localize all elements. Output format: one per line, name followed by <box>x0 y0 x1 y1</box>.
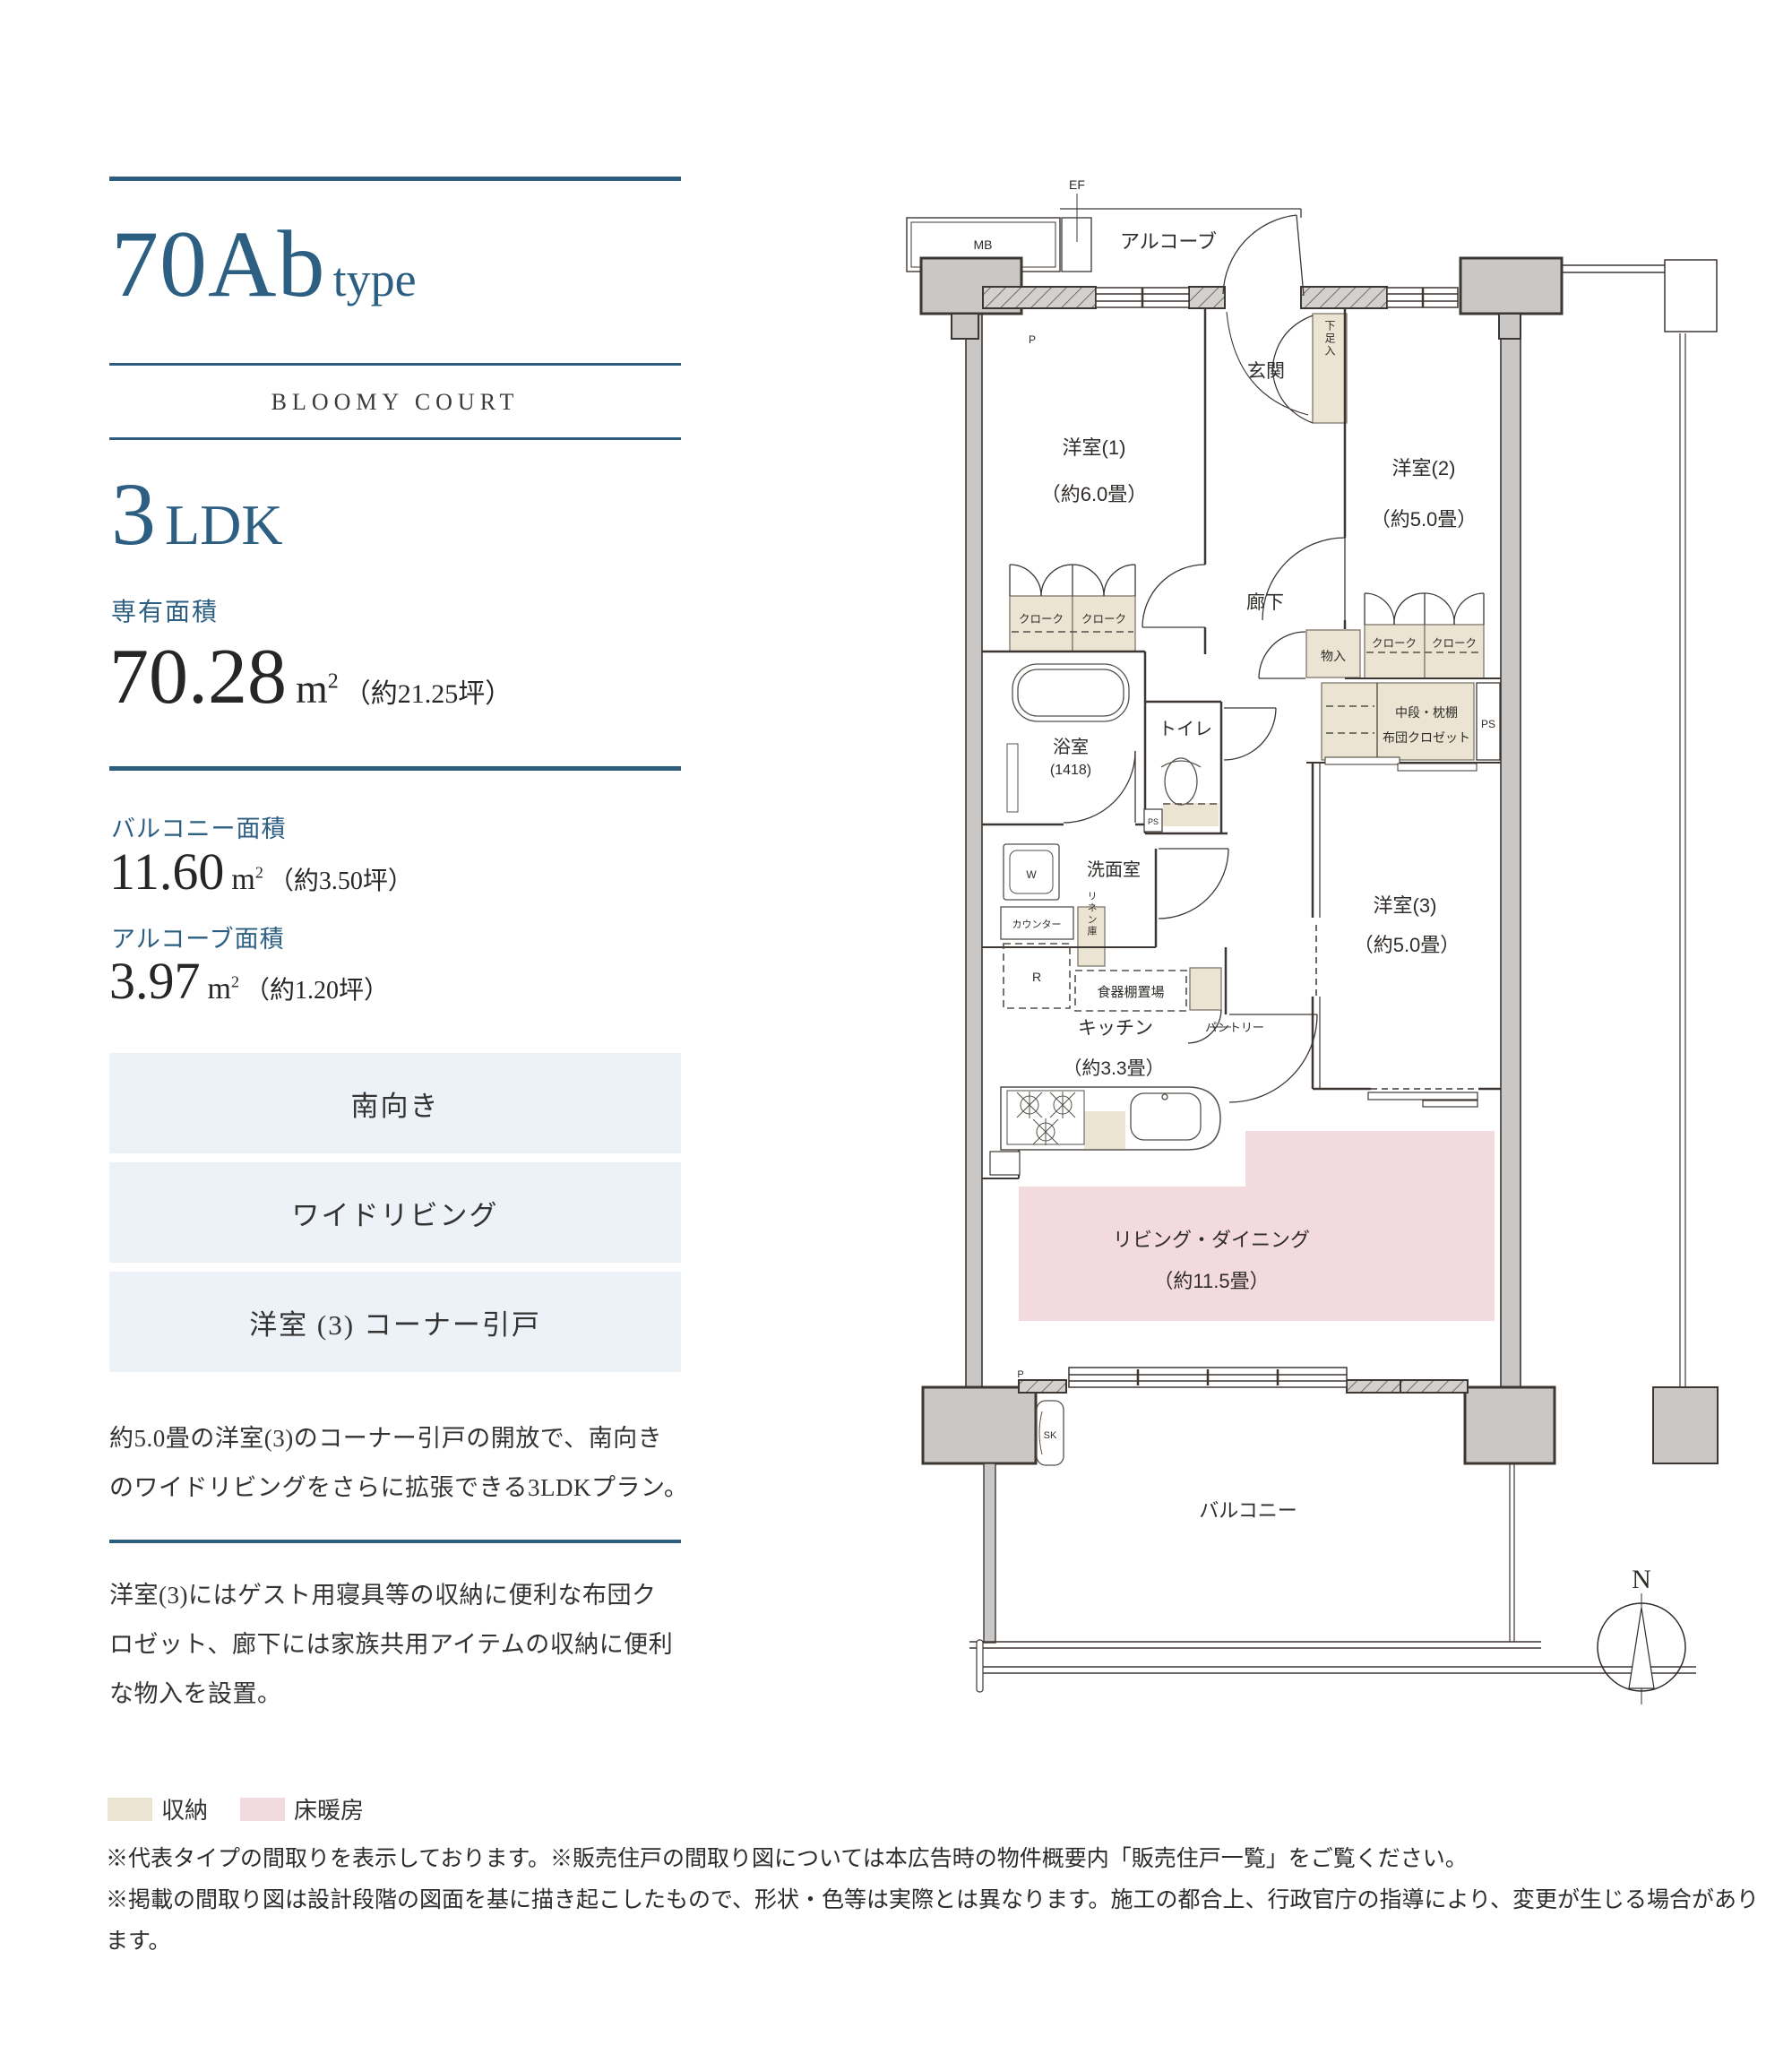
sliding-panel-2 <box>1423 1100 1478 1107</box>
bathtub-inner <box>1018 669 1124 716</box>
balcony-left-wall <box>984 1463 995 1643</box>
layout-type: 3LDK <box>111 470 283 559</box>
futon-closet-line2: 布団クロゼット <box>1383 730 1470 745</box>
feature-corner-door: 洋室 (3) コーナー引戸 <box>109 1272 681 1372</box>
neighbor-box <box>1665 260 1717 332</box>
divider-mid <box>109 766 681 771</box>
entry-door-leaf <box>1297 215 1304 296</box>
alcove-area-line: 3.97m2（約1.20坪） <box>109 955 389 1007</box>
kitchen-sink <box>1131 1093 1201 1140</box>
plan-type-title: 70Abtype <box>111 217 417 312</box>
slop-sink-curve <box>1039 1411 1042 1454</box>
legend-floor-heating: 床暖房 <box>240 1792 364 1825</box>
closet-label-2: クローク <box>1081 613 1126 626</box>
linen-label: リネン庫 <box>1086 891 1098 937</box>
area-line: 70.28m2（約21.25坪） <box>109 638 512 717</box>
brand-name: BLOOMY COURT <box>109 389 681 416</box>
bedroom2-label: 洋室(2) <box>1392 457 1456 479</box>
column-top-right-stem <box>1499 314 1521 339</box>
washroom-label: 洗面室 <box>1087 859 1141 880</box>
balcony-unit-sup: 2 <box>255 864 263 882</box>
area-unit-sup: 2 <box>328 670 339 694</box>
legend-storage-label: 収納 <box>161 1792 208 1825</box>
bedroom2-size: （約5.0畳） <box>1371 508 1478 531</box>
toilet-bowl <box>1165 758 1197 805</box>
ps-label-toilet: PS <box>1148 817 1159 826</box>
floor-heating-area <box>1019 1131 1495 1321</box>
alcove-unit: m <box>208 972 231 1005</box>
compass-needle-triangle <box>1629 1608 1654 1688</box>
area-tsubo: （約21.25坪） <box>344 679 513 709</box>
wall-top-2 <box>1189 287 1225 308</box>
balcony-area-line: 11.60m2（約3.50坪） <box>109 846 413 898</box>
divider-under-title <box>109 363 681 366</box>
bath-size-label: (1418) <box>1050 763 1091 778</box>
balcony-rail-post <box>977 1640 983 1692</box>
column-bottom-right <box>1465 1387 1555 1463</box>
p-label-bottom: P <box>1017 1369 1023 1380</box>
toilet-door-arc <box>1224 708 1276 760</box>
wall-bottom-2 <box>1347 1380 1400 1393</box>
closet-label-3: クローク <box>1372 637 1417 650</box>
layout-letters: LDK <box>165 493 283 557</box>
bedroom3-label: 洋室(3) <box>1374 894 1437 917</box>
sliding-panel-1 <box>1368 1092 1478 1100</box>
wall-bottom-1 <box>1019 1380 1066 1393</box>
legend-storage-swatch <box>108 1798 152 1821</box>
divider-top <box>109 177 681 181</box>
bedroom1-size: （約6.0畳） <box>1041 483 1148 505</box>
shoe-box-label: 下足入 <box>1323 320 1336 358</box>
ps-label-closet: PS <box>1481 718 1495 730</box>
description-paragraph-2: 洋室(3)にはゲスト用寝具等の収納に便利な布団ク ロゼット、廊下には家族共用アイ… <box>109 1571 701 1719</box>
dish-shelf-label: 食器棚置場 <box>1097 985 1164 1000</box>
alcove-area-value: 3.97 <box>109 952 201 1010</box>
balcony-area-tsubo: （約3.50坪） <box>269 867 413 895</box>
left-exterior-wall <box>966 309 982 1389</box>
slop-sink-label: SK <box>1044 1430 1057 1441</box>
footnote-1: ※代表タイプの間取りを表示しております。※販売住戸の間取り図については本広告時の… <box>106 1839 1772 1880</box>
pantry-label: パントリー <box>1205 1021 1264 1034</box>
toilet-counter <box>1163 803 1219 826</box>
right-exterior-wall <box>1501 337 1521 1387</box>
closet-b2-left <box>1365 625 1425 678</box>
counter-label: カウンター <box>1012 919 1062 930</box>
bath-door-arc <box>1064 751 1135 823</box>
feature-wide-living: ワイドリビング <box>109 1162 681 1263</box>
hallway-label: 廊下 <box>1246 592 1284 613</box>
living-label: リビング・ダイニング <box>1113 1229 1310 1251</box>
bedroom1-label: 洋室(1) <box>1063 436 1126 459</box>
compass <box>1598 1593 1685 1704</box>
storage-door-arc <box>1259 632 1305 678</box>
divider-paragraphs <box>109 1540 681 1543</box>
bath-niche <box>1007 744 1018 812</box>
wall-top-3 <box>1301 287 1387 308</box>
bathtub-outer <box>1012 664 1129 721</box>
toilet-seat <box>1161 761 1201 767</box>
column-top-left-stem <box>952 314 978 339</box>
kitchen-label: キッチン <box>1078 1018 1153 1039</box>
structure-columns <box>907 218 1718 1643</box>
bedroom1-door-arc <box>1142 565 1205 627</box>
footnotes: ※代表タイプの間取りを表示しております。※販売住戸の間取り図については本広告時の… <box>106 1839 1772 1963</box>
plan-type-name: 70Ab <box>111 211 326 316</box>
floorplan-drawing: MB EF アルコーブ 玄関 下足入 洋室(1) （約6.0畳） 洋室(2) （… <box>806 125 1720 1721</box>
balcony-unit: m <box>231 863 254 896</box>
closet-label-4: クローク <box>1432 637 1477 650</box>
alcove-unit-sup: 2 <box>231 973 239 991</box>
closet-b2-right <box>1425 625 1484 678</box>
column-bottom-left <box>923 1387 1036 1463</box>
compass-north-label: N <box>1632 1565 1651 1594</box>
futon-closet <box>1322 683 1474 760</box>
ef-label: EF <box>1069 177 1085 192</box>
alcove-label: アルコーブ <box>1120 230 1217 253</box>
legend-storage: 収納 <box>108 1792 208 1825</box>
description-paragraph-1: 約5.0畳の洋室(3)のコーナー引戸の開放で、南向き のワイドリビングをさらに拡… <box>109 1414 701 1513</box>
futon-slider-1 <box>1325 757 1400 764</box>
hall-storage-label: 物入 <box>1321 649 1346 663</box>
fridge-label: R <box>1032 970 1041 984</box>
footnote-2: ※掲載の間取り図は設計段階の図面を基に描き起こしたもので、形状・色等は実際とは異… <box>106 1880 1772 1963</box>
kitchen-counter-strip <box>1084 1111 1125 1149</box>
plan-type-suffix: type <box>333 253 417 306</box>
legend-heating-swatch <box>240 1798 285 1821</box>
futon-slider-2 <box>1398 764 1477 771</box>
toilet-label: トイレ <box>1159 720 1212 739</box>
futon-closet-line1: 中段・枕棚 <box>1395 705 1458 720</box>
p-label-top: P <box>1029 333 1036 346</box>
area-label: 専有面積 <box>111 592 219 628</box>
legend-heating-label: 床暖房 <box>294 1792 364 1825</box>
entrance-label: 玄関 <box>1247 361 1285 382</box>
ps-shaft-kitchen <box>990 1152 1020 1175</box>
area-value: 70.28 <box>109 634 287 721</box>
washroom-door-arc <box>1159 849 1228 919</box>
feature-south-facing: 南向き <box>109 1053 681 1153</box>
balcony-area-value: 11.60 <box>109 842 224 901</box>
bath-label: 浴室 <box>1053 737 1089 757</box>
closet-label-1: クローク <box>1019 613 1064 626</box>
balcony-area-label: バルコニー面積 <box>111 809 286 844</box>
floorplan-ad-page: { "panel": { "type_name": "70Ab", "type_… <box>0 0 1792 2054</box>
column-top-right <box>1460 258 1562 314</box>
alcove-area-label: アルコーブ面積 <box>111 919 285 954</box>
living-size-label: （約11.5畳） <box>1153 1270 1269 1292</box>
layout-number: 3 <box>111 464 156 564</box>
wall-bottom-3 <box>1400 1380 1468 1393</box>
column-neighbor-bottom <box>1653 1387 1718 1463</box>
entry-door-arc <box>1223 215 1297 294</box>
balcony-label: バルコニー <box>1199 1499 1297 1522</box>
kitchen-size-label: （約3.3畳） <box>1063 1058 1164 1079</box>
meter-box-label: MB <box>974 237 993 252</box>
area-unit: m <box>296 666 328 712</box>
faucet <box>1162 1094 1167 1100</box>
legend: 収納 床暖房 <box>108 1792 396 1825</box>
wall-top-1 <box>983 287 1096 308</box>
alcove-area-tsubo: （約1.20坪） <box>245 977 389 1005</box>
washer-label: W <box>1026 868 1037 881</box>
divider-under-brand <box>109 437 681 440</box>
bedroom3-size: （約5.0畳） <box>1354 934 1460 956</box>
pantry-box <box>1190 968 1221 1010</box>
stove-burners <box>1017 1092 1075 1145</box>
